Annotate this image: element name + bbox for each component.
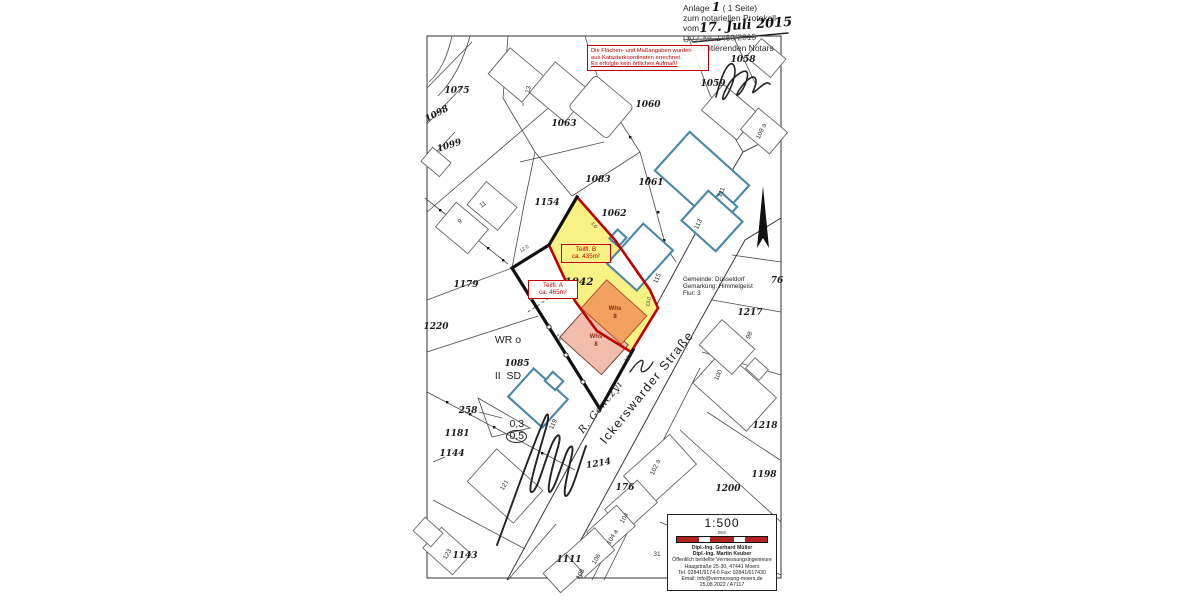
parcel-number-label: 76 <box>771 276 784 286</box>
disclaimer-line-1: Die Flächen- und Maßangaben wurden <box>591 48 705 55</box>
scale-bar <box>676 536 768 543</box>
pages-count: ( 1 Seite) <box>723 3 758 13</box>
parcel-number-label: 1200 <box>715 484 741 494</box>
parcel-number-label: 1098 <box>424 104 451 125</box>
site-plan-map: Ickerswarder Straße R. Gonczyi 107510981… <box>0 0 1200 600</box>
zoning-ratio: 0,3 <box>509 418 524 430</box>
parcel-number-label: 1218 <box>752 421 778 431</box>
flur-line: Flur: 3 <box>683 290 753 297</box>
parcel-number-label: 176 <box>616 483 636 493</box>
parcel-number-label: 1063 <box>551 119 576 129</box>
parcel-number-label: 1061 <box>638 178 663 188</box>
anlage-number-handwritten: 1 <box>712 0 720 14</box>
parcel-number-label: 1214 <box>585 457 611 471</box>
teilflaeche-b-area: ca. 435m² <box>562 253 610 260</box>
teilflaeche-a-title: Teilfl. A <box>529 282 577 289</box>
dwelling-house-label: Whs <box>609 306 622 312</box>
zoning-line-3: 0,3 0,5 <box>476 406 540 455</box>
plan-date-reference: 25.08.2022 / A7117 <box>668 582 776 588</box>
parcel-number-label: 1059 <box>700 79 726 89</box>
attachment-line: Anlage 1 ( 1 Seite) <box>683 2 843 13</box>
north-arrow-icon <box>757 186 769 248</box>
scale-and-surveyor-box: 1:500 25m Dipl.-Ing. Gerhard Müller Dipl… <box>667 514 777 591</box>
parcel-number-label: 1220 <box>423 322 449 332</box>
parcel-number-label: 1154 <box>534 198 559 208</box>
parcel-number-label: 1058 <box>730 55 756 65</box>
dimension-label: 12.0 <box>519 244 531 254</box>
municipality-block: Gemeinde: Düsseldorf Gemarkung: Himmelge… <box>683 276 753 298</box>
gemeinde-line: Gemeinde: Düsseldorf <box>683 276 753 283</box>
dimension-label: 3.9 <box>553 333 562 342</box>
teilflaeche-a-area: ca. 465m² <box>529 289 577 296</box>
zoning-line-1: WR o <box>476 334 540 346</box>
parcel-number-label: 1099 <box>436 137 464 154</box>
parcel-number-label: 1181 <box>444 429 469 439</box>
house-number-label: 115 <box>652 272 663 285</box>
zoning-line-2: II SD <box>476 370 540 382</box>
house-number-label: 31 <box>653 551 661 558</box>
disclaimer-line-3: Es erfolgte kein örtliches Aufmaß! <box>591 61 705 68</box>
parcel-number-label: 1198 <box>751 470 777 480</box>
teilflaeche-a-label: Teilfl. A ca. 465m² <box>528 280 578 299</box>
measurement-disclaimer-box: Die Flächen- und Maßangaben wurden aus K… <box>587 45 709 71</box>
gemarkung-line: Gemarkung: Himmelgeist <box>683 283 753 290</box>
house-number-label: 98 <box>745 330 755 340</box>
vom-label: vom <box>683 23 699 33</box>
parcel-number-label: 1075 <box>444 86 469 96</box>
zoning-designation: WR o II SD 0,3 0,5 <box>476 310 540 479</box>
parcel-number-label: 1062 <box>601 209 626 219</box>
parcel-number-label: 1083 <box>585 175 610 185</box>
parcel-number-label: 1217 <box>737 308 763 318</box>
parcel-number-label: 1143 <box>452 551 477 561</box>
dwelling-house-label: Whs <box>590 334 603 340</box>
cadastral-plan-page: Ickerswarder Straße R. Gonczyi 107510981… <box>0 0 1200 600</box>
parcel-number-label: 1111 <box>556 555 581 565</box>
surveyor-title: Öffentlich bestellte Vermessungsingenieu… <box>668 557 776 563</box>
parcel-number-label: 1144 <box>439 449 464 459</box>
scale-value: 1:500 <box>668 516 776 530</box>
parcel-number-label: 1179 <box>453 280 479 290</box>
anlage-label: Anlage <box>683 3 709 13</box>
disclaimer-line-2: aus Katasterkoordinaten errechnet. <box>591 55 705 62</box>
parcel-number-label: 1060 <box>635 100 661 110</box>
zoning-ratio-circled: 0,5 <box>506 430 527 443</box>
teilflaeche-b-label: Teilfl. B ca. 435m² <box>561 244 611 263</box>
teilflaeche-b-title: Teilfl. B <box>562 246 610 253</box>
scale-bar-length: 25m <box>668 530 776 535</box>
